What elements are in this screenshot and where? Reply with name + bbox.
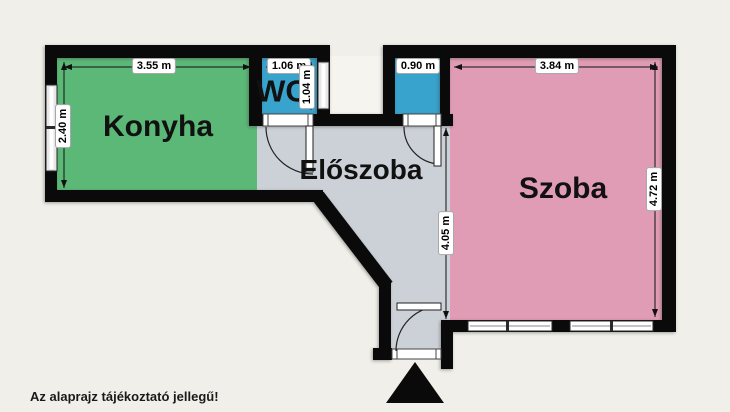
- floorplan: Konyha WC Előszoba Szoba 3.55 m 2.40 m 1…: [0, 0, 730, 412]
- wall-konyha-bottom: [45, 190, 323, 202]
- wc-window-icon: [318, 62, 329, 109]
- eloszoba-room-label: Előszoba: [300, 156, 423, 184]
- szoba-window-icon-2: [570, 321, 653, 331]
- dim-hall-height: 4.05 m: [438, 211, 454, 255]
- dim-szoba-height: 4.72 m: [646, 167, 662, 211]
- dim-bathroom-width: 0.90 m: [396, 58, 440, 74]
- wall-entry-right-jamb: [441, 331, 453, 369]
- dim-konyha-height: 2.40 m: [55, 104, 71, 148]
- wall-top-left: [45, 45, 330, 58]
- wall-top-right: [383, 45, 676, 58]
- dim-wc-height: 1.04 m: [299, 65, 315, 109]
- disclaimer-text: Az alaprajz tájékoztató jellegű!: [30, 389, 219, 404]
- szoba-window-icon-1: [468, 321, 552, 331]
- dim-szoba-width: 3.84 m: [535, 58, 579, 74]
- wall-entry-left-jamb: [373, 348, 392, 360]
- wall-bathroom-left: [383, 45, 395, 126]
- floorplan-drawing: [0, 0, 730, 412]
- konyha-room-label: Konyha: [103, 112, 213, 142]
- szoba-room-label: Szoba: [519, 174, 607, 204]
- dim-konyha-width: 3.55 m: [132, 58, 176, 74]
- wall-szoba-right: [662, 45, 676, 332]
- exterior-notch: [327, 56, 385, 116]
